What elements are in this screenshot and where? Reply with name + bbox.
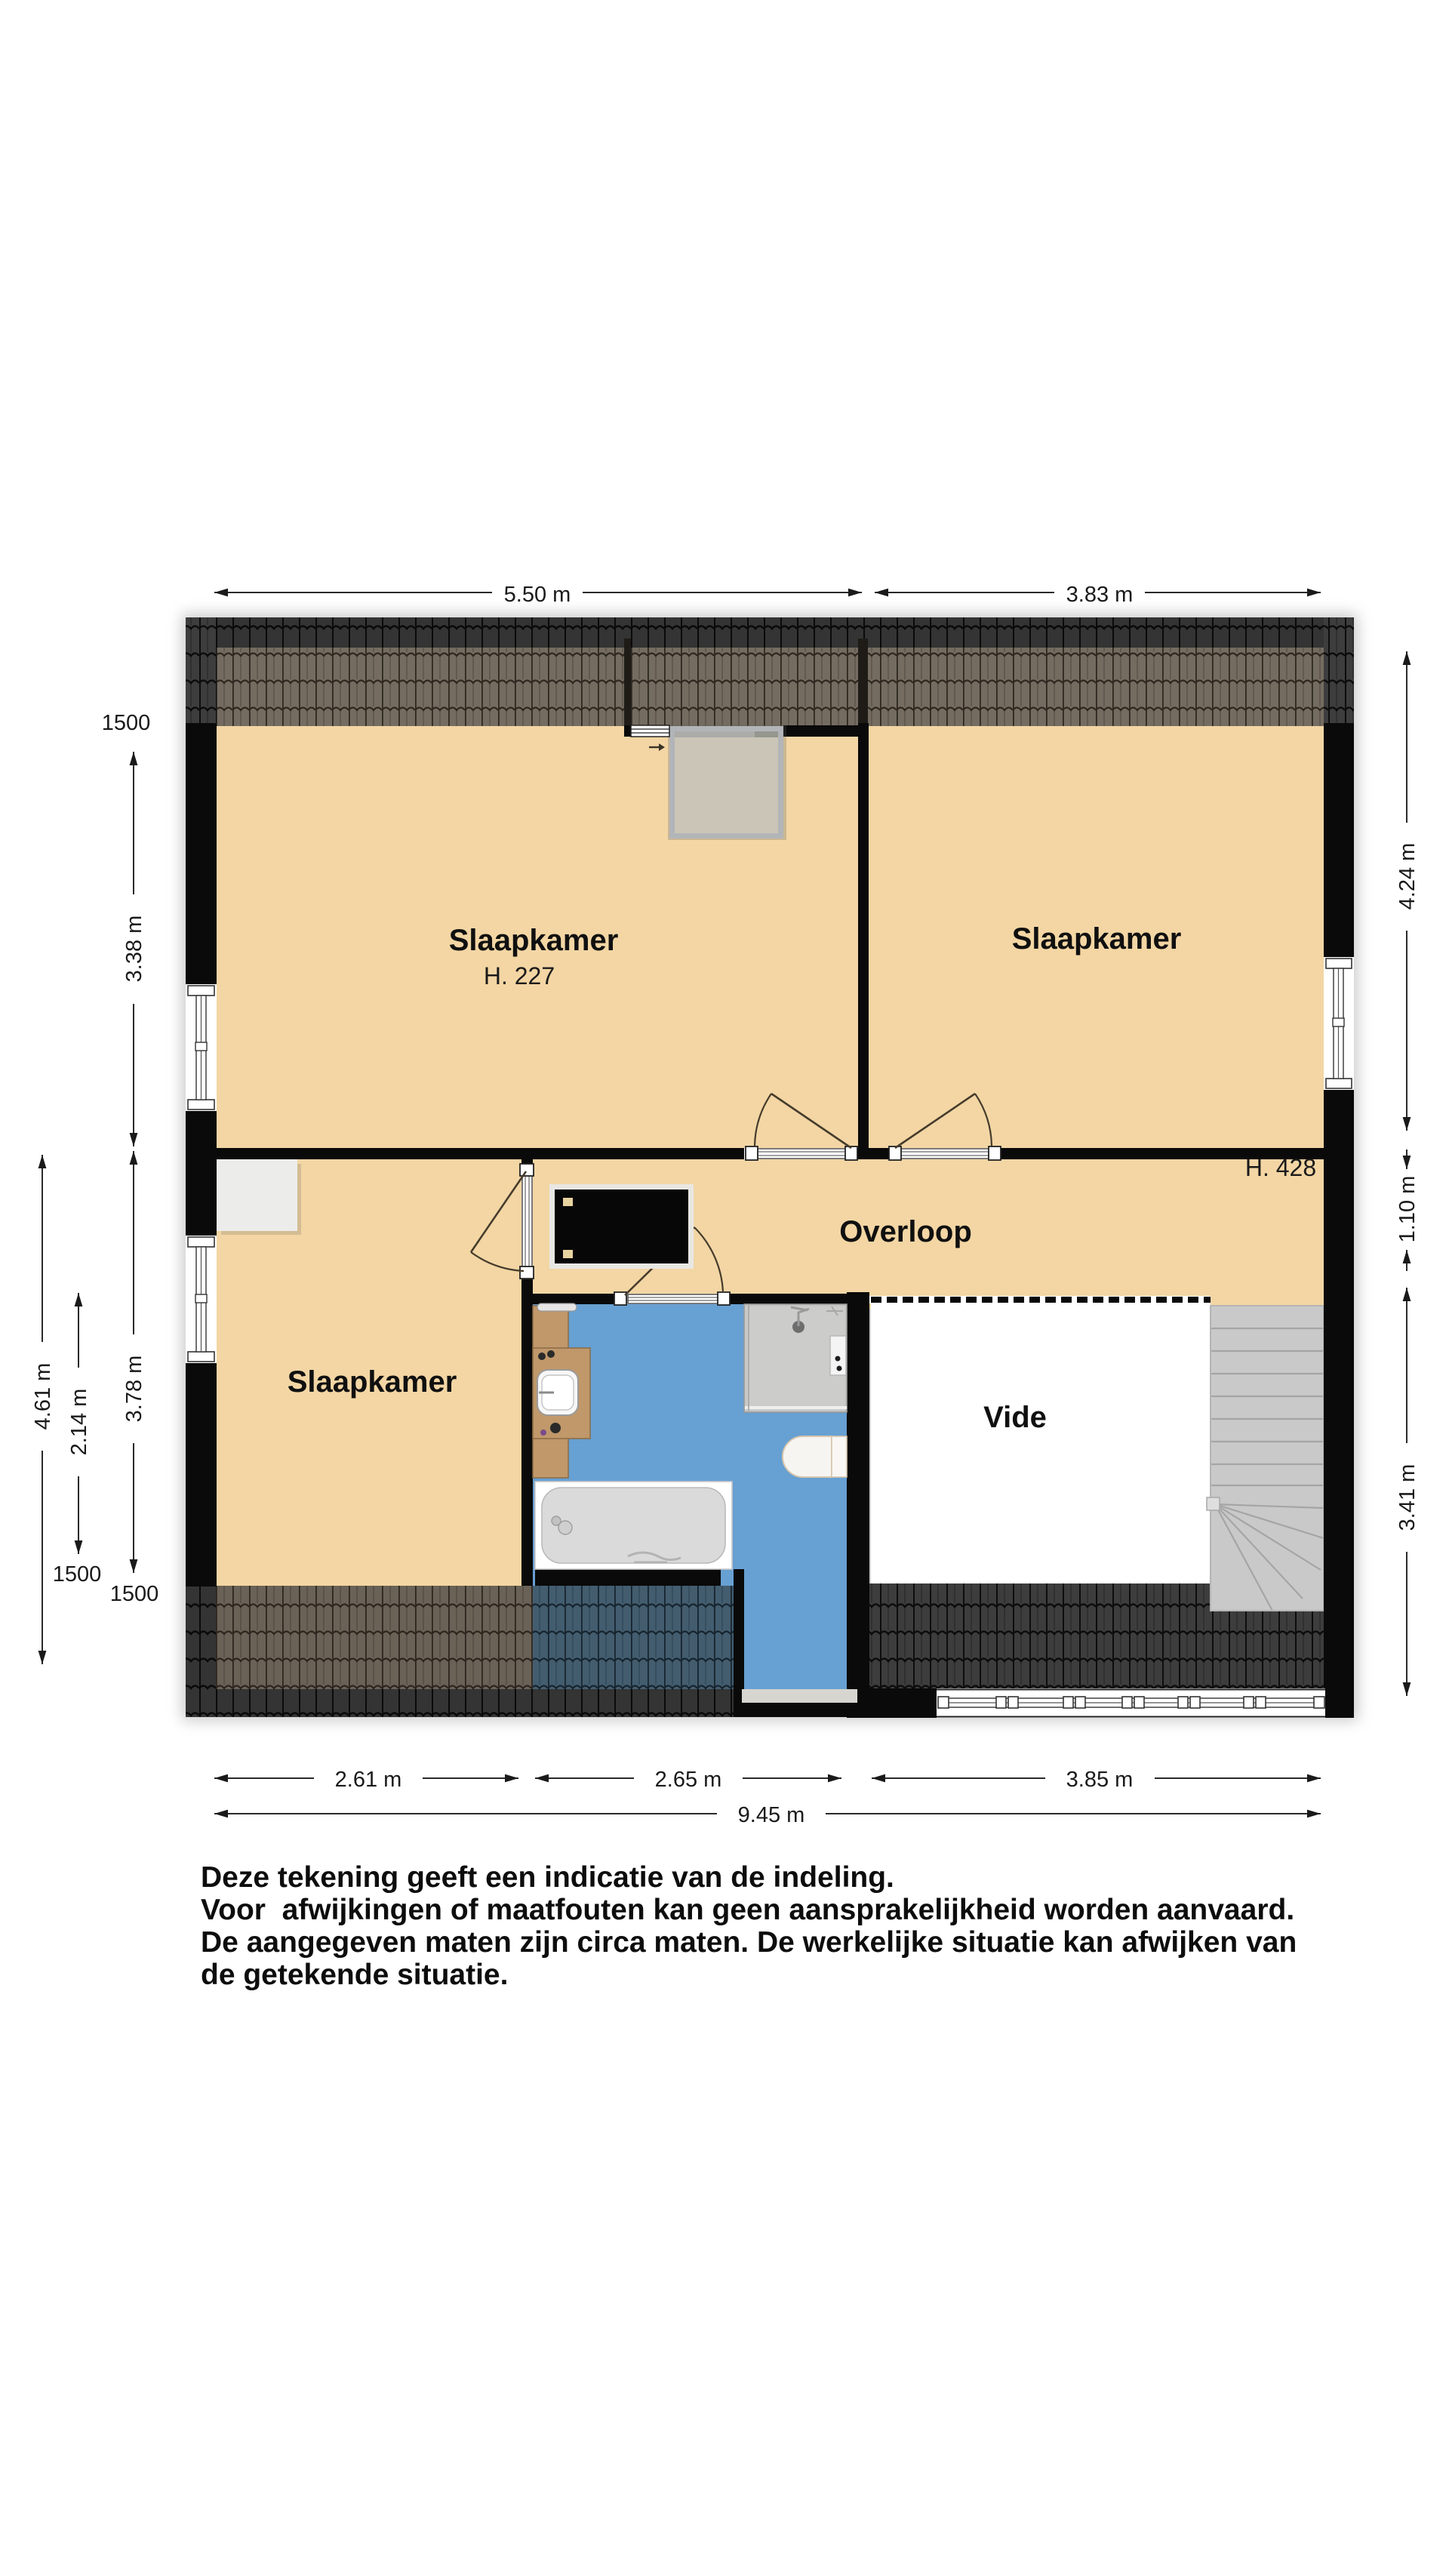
svg-text:Deze tekening geeft een indica: Deze tekening geeft een indicatie van de… xyxy=(201,1861,894,1894)
svg-text:De aangegeven maten zijn circa: De aangegeven maten zijn circa maten. De… xyxy=(201,1926,1297,1959)
svg-text:3.85 m: 3.85 m xyxy=(1066,1768,1134,1792)
svg-text:Vide: Vide xyxy=(983,1401,1047,1434)
svg-text:3.38 m: 3.38 m xyxy=(122,916,146,983)
svg-text:2.65 m: 2.65 m xyxy=(655,1768,722,1792)
svg-text:Slaapkamer: Slaapkamer xyxy=(288,1365,457,1399)
svg-text:4.61 m: 4.61 m xyxy=(31,1363,55,1430)
svg-text:3.41 m: 3.41 m xyxy=(1395,1464,1420,1531)
svg-text:Slaapkamer: Slaapkamer xyxy=(449,924,619,957)
svg-text:H. 227: H. 227 xyxy=(484,962,555,989)
svg-text:de getekende situatie.: de getekende situatie. xyxy=(201,1959,508,1991)
svg-text:4.24 m: 4.24 m xyxy=(1395,843,1420,910)
svg-text:Voor afwijkingen of maatfoute: Voor afwijkingen of maatfouten kan geen … xyxy=(201,1894,1294,1926)
svg-text:2.14 m: 2.14 m xyxy=(67,1389,91,1456)
svg-text:Slaapkamer: Slaapkamer xyxy=(1012,922,1182,956)
svg-text:1.10 m: 1.10 m xyxy=(1395,1176,1420,1243)
svg-text:1500: 1500 xyxy=(53,1562,102,1587)
svg-text:H. 428: H. 428 xyxy=(1245,1154,1316,1181)
svg-text:2.61 m: 2.61 m xyxy=(335,1768,402,1792)
svg-text:9.45 m: 9.45 m xyxy=(738,1803,805,1827)
svg-text:1500: 1500 xyxy=(102,711,151,735)
svg-text:3.78 m: 3.78 m xyxy=(122,1356,146,1423)
svg-text:5.50 m: 5.50 m xyxy=(504,583,571,607)
svg-text:1500: 1500 xyxy=(110,1582,159,1606)
svg-text:3.83 m: 3.83 m xyxy=(1066,583,1134,607)
svg-text:Overloop: Overloop xyxy=(839,1215,972,1248)
